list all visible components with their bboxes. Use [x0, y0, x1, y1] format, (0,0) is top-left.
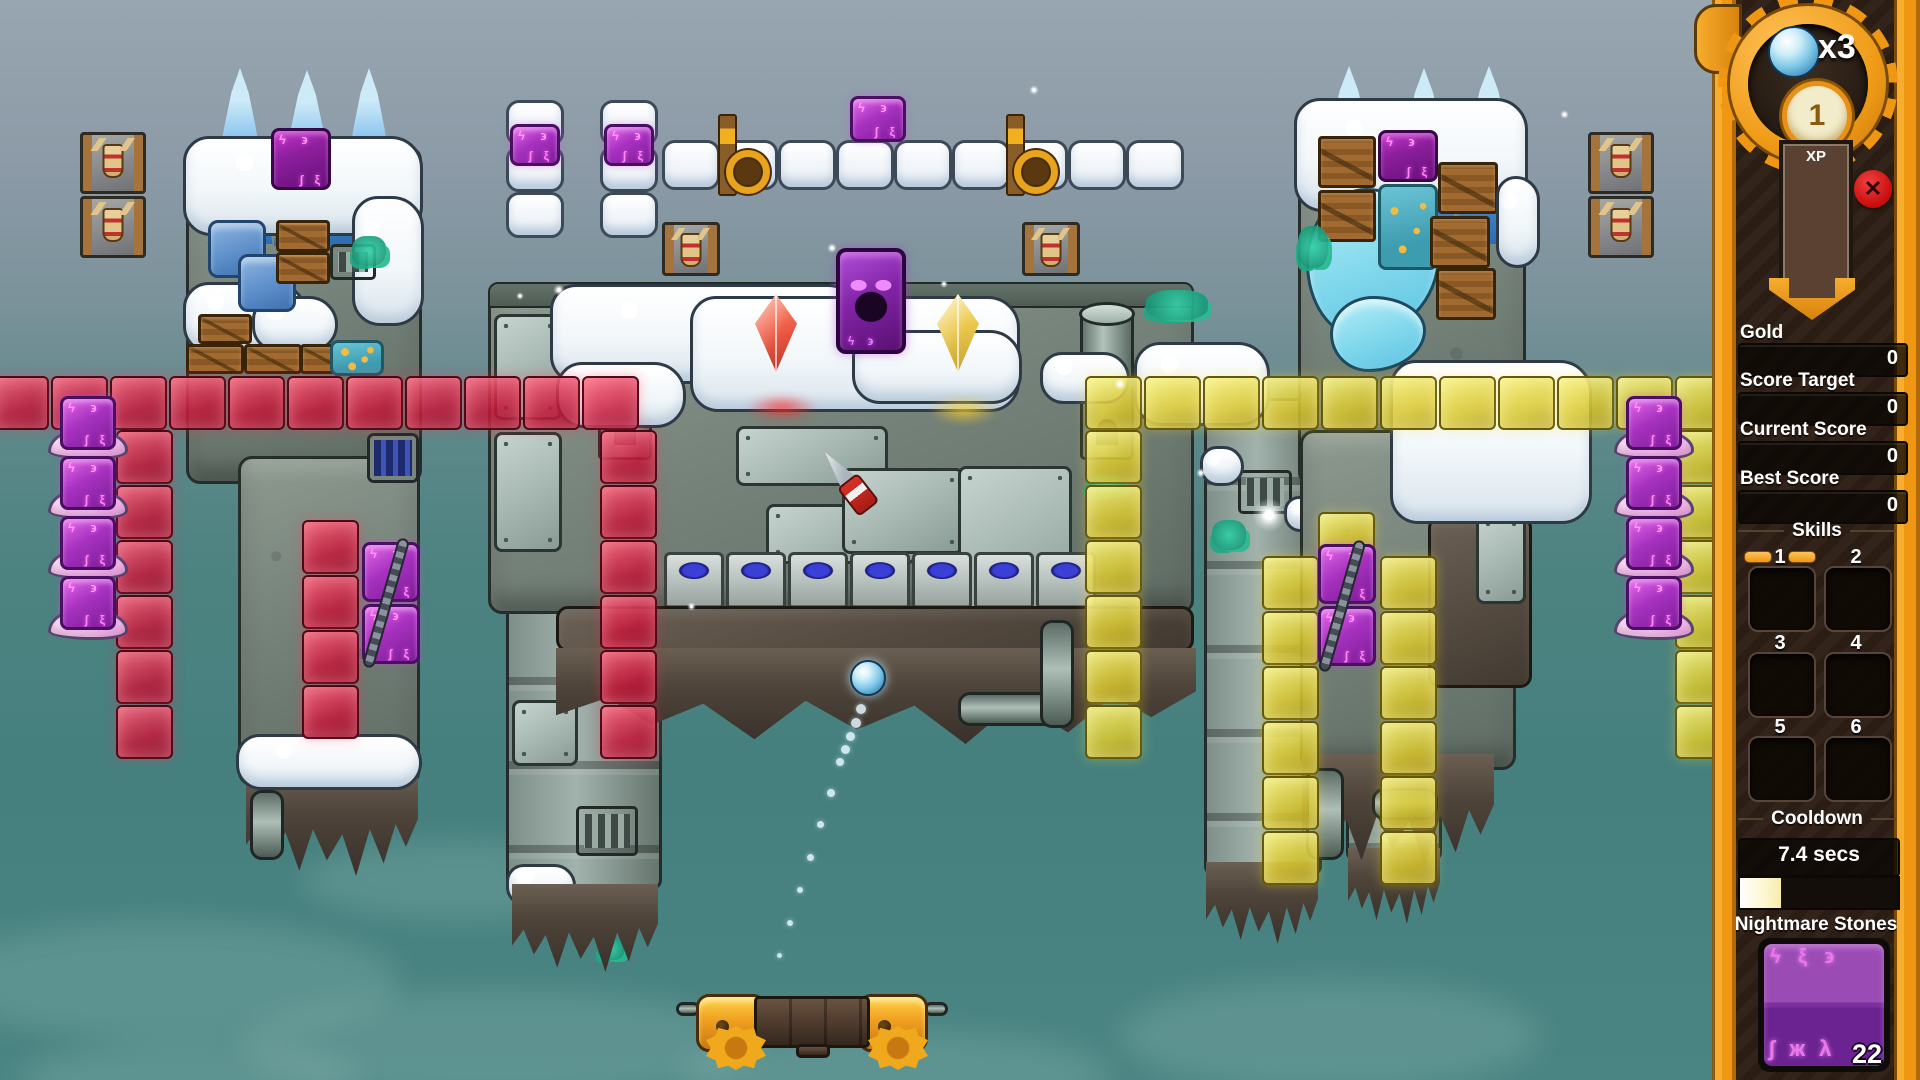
sparkle	[1029, 85, 1039, 95]
brick-red	[302, 685, 359, 739]
sparkle	[827, 243, 837, 253]
brick-red	[346, 376, 403, 430]
brick-red	[600, 485, 657, 539]
ball	[850, 660, 886, 696]
sparkle	[1114, 378, 1126, 390]
purple-stone	[1378, 130, 1438, 182]
crate	[276, 252, 330, 284]
purple-gem	[510, 124, 560, 166]
window	[370, 436, 416, 480]
dot	[841, 745, 850, 754]
dot	[856, 704, 866, 714]
glow-yellow	[928, 396, 1000, 424]
cloud-block	[894, 140, 952, 190]
brick-red	[600, 430, 657, 484]
porthole	[726, 552, 786, 610]
brick-yellow	[1085, 430, 1142, 484]
crate	[1430, 216, 1490, 268]
brick-yellow	[1262, 666, 1319, 720]
brick-red	[0, 376, 49, 430]
dot	[777, 953, 782, 958]
skill-selected-dash-left	[1744, 551, 1772, 563]
bell-crate	[1588, 196, 1654, 258]
crate	[1438, 162, 1498, 214]
skill-slot-3[interactable]	[1748, 652, 1816, 718]
brick-yellow	[1498, 376, 1555, 430]
hud-sidebar: x3 1 XP ✕ Gold 0 Score Target 0 Current …	[1712, 0, 1920, 1080]
brick-red	[116, 705, 173, 759]
brick-red	[302, 575, 359, 629]
brick-yellow	[1380, 376, 1437, 430]
sparkle	[1560, 110, 1569, 119]
purple-gem	[1626, 396, 1682, 450]
ball-icon	[1768, 26, 1820, 78]
gold-label: Gold	[1740, 322, 1898, 344]
brick-red	[405, 376, 462, 430]
crate	[198, 314, 252, 344]
horn	[1002, 114, 1062, 192]
crate	[244, 344, 302, 374]
brick-red	[287, 376, 344, 430]
dot	[827, 789, 835, 797]
brick-yellow	[1380, 556, 1437, 610]
ball-count: x3	[1818, 28, 1878, 67]
brick-red	[228, 376, 285, 430]
brick-yellow	[1085, 705, 1142, 759]
sparkle	[516, 292, 524, 300]
bell-crate	[1588, 132, 1654, 194]
cooldown-title: Cooldown	[1771, 808, 1863, 830]
soft-cloud	[1120, 980, 1540, 1080]
sparkle	[1196, 468, 1206, 478]
skill-slot-5[interactable]	[1748, 736, 1816, 802]
plate	[1476, 512, 1526, 604]
brick-red	[110, 376, 167, 430]
brick-yellow	[1557, 376, 1614, 430]
plate	[494, 432, 562, 552]
xp-bar: XP	[1779, 140, 1853, 292]
bell-crate	[1022, 222, 1080, 276]
brick-yellow	[1085, 595, 1142, 649]
sparkle	[553, 284, 565, 296]
brick-yellow	[1262, 831, 1319, 885]
brick-red	[600, 705, 657, 759]
game-scene[interactable]	[0, 0, 1920, 1080]
dot	[836, 758, 844, 766]
crate	[1436, 268, 1496, 320]
dot	[807, 854, 814, 861]
purple-gem	[60, 576, 116, 630]
rock-bottom	[512, 884, 658, 972]
nightmare-stone-tile[interactable]: 22	[1758, 938, 1890, 1072]
brick-red	[302, 520, 359, 574]
dot	[817, 821, 824, 828]
brick-yellow	[1380, 831, 1437, 885]
purple-gem	[1626, 456, 1682, 510]
purple-gem	[60, 456, 116, 510]
brick-red	[523, 376, 580, 430]
nightmare-stone-count: 22	[1852, 1039, 1882, 1070]
skills-header: Skills	[1738, 520, 1896, 542]
glow-red	[746, 394, 818, 422]
snow	[1200, 446, 1244, 486]
dot	[851, 718, 861, 728]
brick-red	[582, 376, 639, 430]
score-target-label: Score Target	[1740, 370, 1898, 392]
cooldown-progress-fill	[1740, 878, 1781, 908]
purple-gem	[850, 96, 906, 142]
brick-yellow	[1380, 611, 1437, 665]
snow	[1496, 176, 1540, 268]
xp-arrow-inner	[1789, 278, 1835, 298]
purple-gem	[60, 396, 116, 450]
brick-yellow	[1321, 376, 1378, 430]
porthole	[850, 552, 910, 610]
grate	[576, 806, 638, 856]
purple-gem	[604, 124, 654, 166]
pipe	[250, 790, 284, 860]
crate	[186, 344, 244, 374]
sparkle	[687, 602, 696, 611]
crate	[276, 220, 330, 252]
bell-crate	[80, 132, 146, 194]
brick-yellow	[1262, 721, 1319, 775]
bell-crate	[662, 222, 720, 276]
cloud-block	[1126, 140, 1184, 190]
brick-red	[116, 650, 173, 704]
close-button[interactable]: ✕	[1854, 170, 1892, 208]
purple-gem	[1626, 576, 1682, 630]
brick-red	[600, 650, 657, 704]
brick-yellow	[1262, 556, 1319, 610]
cloud-block	[662, 140, 720, 190]
bell-crate	[80, 196, 146, 258]
dot	[787, 920, 793, 926]
cloud-block	[506, 192, 564, 238]
brick-yellow	[1262, 376, 1319, 430]
brick-yellow	[1380, 776, 1437, 830]
best-score-label: Best Score	[1740, 468, 1898, 490]
nightmare-stones-header: Nightmare Stones	[1720, 914, 1912, 936]
snow	[236, 734, 422, 790]
crate	[1318, 136, 1376, 188]
purple-gem	[1626, 516, 1682, 570]
game-stage: x3 1 XP ✕ Gold 0 Score Target 0 Current …	[0, 0, 1920, 1080]
cooldown-progress	[1738, 876, 1900, 910]
cloud-block	[1068, 140, 1126, 190]
sparkle	[940, 280, 948, 288]
moss	[352, 236, 386, 266]
sparkle	[1252, 498, 1286, 532]
paddle-wood	[796, 1044, 830, 1058]
skill-slot-1[interactable]	[1748, 566, 1816, 632]
porthole	[788, 552, 848, 610]
brick-yellow	[1085, 650, 1142, 704]
cloud-block	[600, 192, 658, 238]
flower-block	[330, 340, 384, 376]
brick-yellow	[1085, 485, 1142, 539]
brick-yellow	[1262, 776, 1319, 830]
brick-yellow	[1380, 666, 1437, 720]
dot	[846, 732, 855, 741]
cloud-block	[836, 140, 894, 190]
brick-red	[169, 376, 226, 430]
porthole	[664, 552, 724, 610]
horn	[714, 114, 774, 192]
moss	[1298, 226, 1328, 268]
brick-red	[464, 376, 521, 430]
brick-yellow	[1262, 611, 1319, 665]
moss	[1146, 290, 1208, 320]
brick-red	[600, 595, 657, 649]
brick-red	[116, 430, 173, 484]
pipe	[1040, 620, 1074, 728]
brick-yellow	[1439, 376, 1496, 430]
brick-yellow	[1203, 376, 1260, 430]
cooldown-value: 7.4 secs	[1738, 838, 1900, 877]
purple-stone	[271, 128, 331, 190]
brick-yellow	[1085, 540, 1142, 594]
brick-red	[302, 630, 359, 684]
dot	[797, 887, 803, 893]
brick-yellow	[1144, 376, 1201, 430]
paddle-wood[interactable]	[754, 996, 870, 1048]
moss	[1212, 520, 1246, 550]
current-score-label: Current Score	[1740, 419, 1898, 441]
brick-yellow	[1380, 721, 1437, 775]
skill-selected-dash-right	[1788, 551, 1816, 563]
cloud-block	[778, 140, 836, 190]
skill-slot-2[interactable]	[1824, 566, 1892, 632]
skill-slot-6[interactable]	[1824, 736, 1892, 802]
flower-block	[1378, 184, 1438, 270]
skills-title: Skills	[1792, 520, 1842, 542]
skill-slot-4[interactable]	[1824, 652, 1892, 718]
best-score-value: 0	[1738, 490, 1908, 524]
porthole	[974, 552, 1034, 610]
brick-red	[600, 540, 657, 594]
cooldown-header: Cooldown	[1738, 808, 1896, 830]
demon	[836, 248, 906, 354]
porthole	[912, 552, 972, 610]
purple-gem	[60, 516, 116, 570]
